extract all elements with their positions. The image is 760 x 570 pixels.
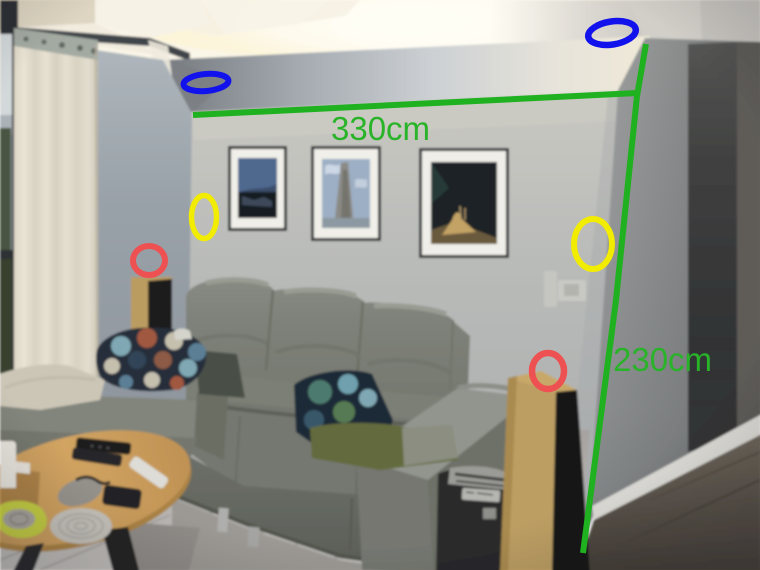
svg-text:230cm: 230cm	[613, 341, 712, 378]
svg-text:330cm: 330cm	[331, 110, 430, 147]
